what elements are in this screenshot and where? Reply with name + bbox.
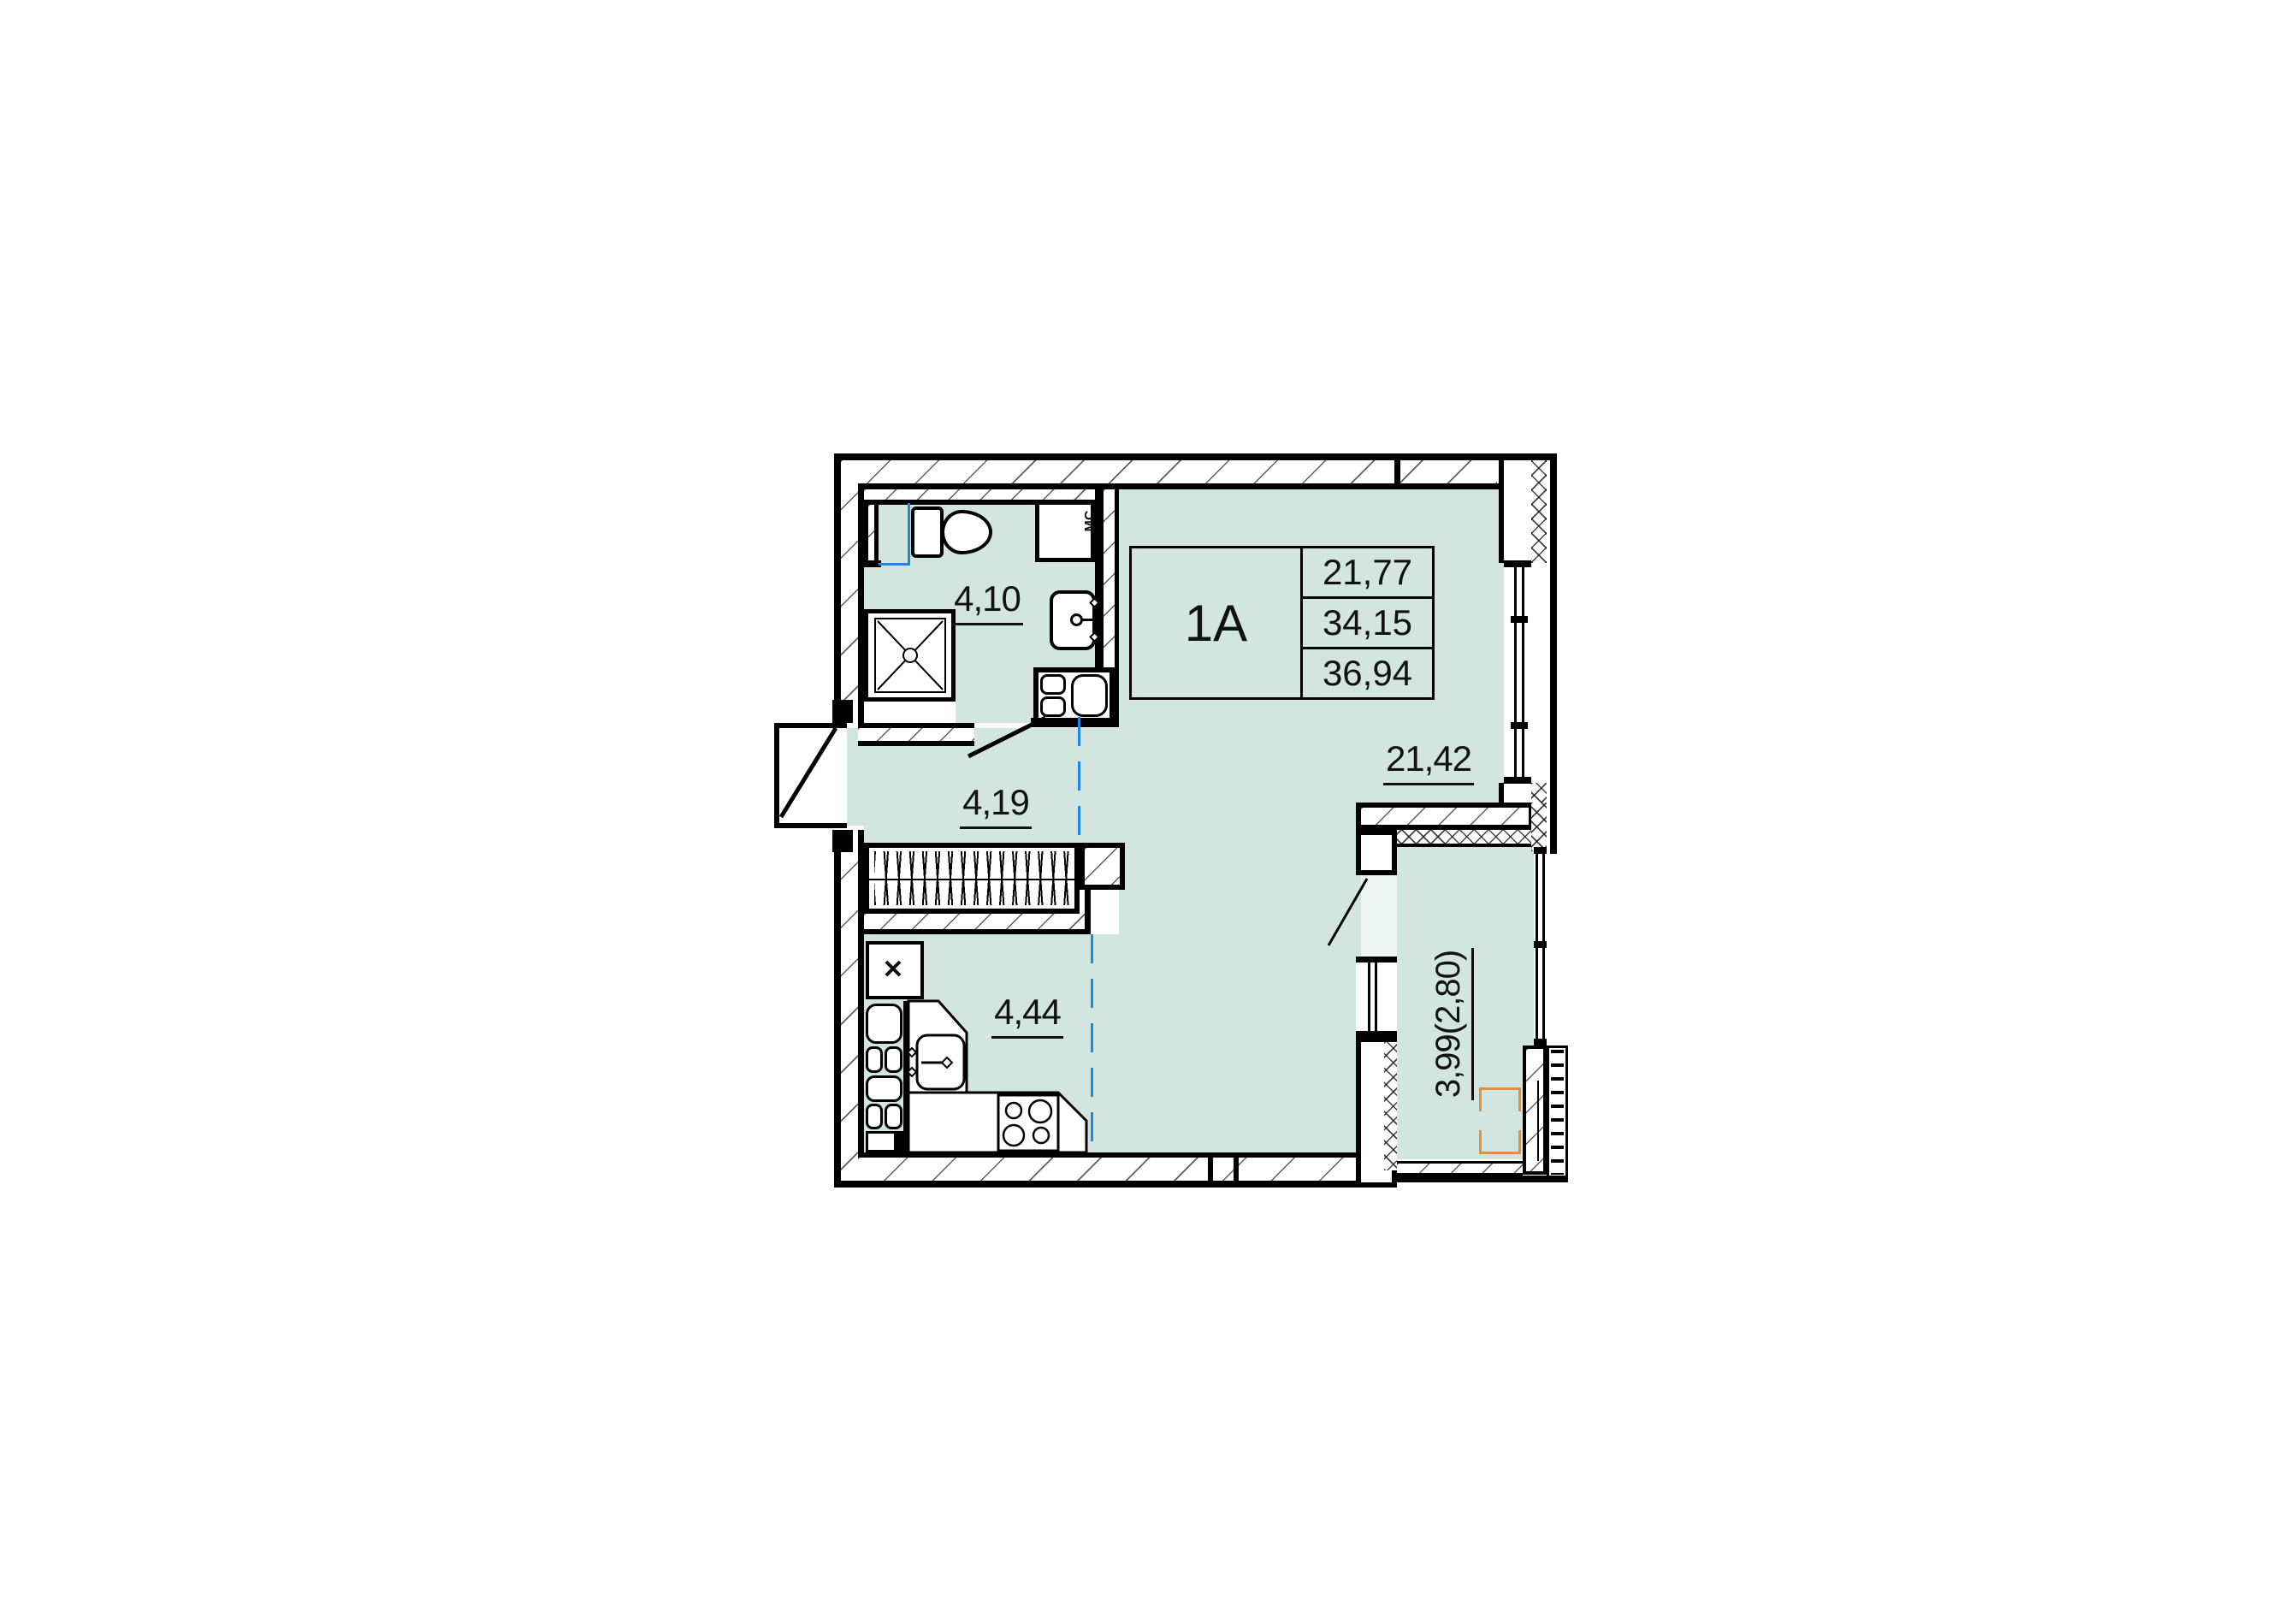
floor-plan-canvas: МС ✕ 1A 21,77 34,15 36,94 xyxy=(0,0,2296,1623)
overlay-drawing xyxy=(0,0,2296,1623)
stove-burner-1 xyxy=(1006,1103,1021,1118)
shower-drain xyxy=(903,649,917,662)
stove-burner-4 xyxy=(1033,1128,1049,1143)
stove-burner-3 xyxy=(1003,1125,1024,1146)
balcony-door-swing xyxy=(1328,879,1367,945)
stove-burner-2 xyxy=(1029,1100,1051,1122)
bathroom-door-swing xyxy=(968,718,1045,756)
entrance-door-swing xyxy=(781,728,836,817)
